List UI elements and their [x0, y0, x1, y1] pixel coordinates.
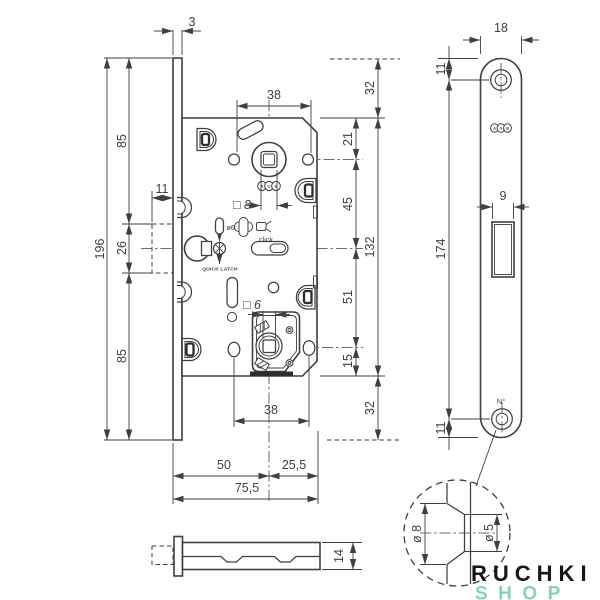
faceplate-view: A G B N° 18	[434, 21, 539, 486]
wc-fixing-hole-left	[228, 342, 240, 356]
watermark-line2: SHOP	[475, 584, 571, 600]
drawing-canvas: A G B QUICK LATCH	[0, 0, 600, 600]
dim-right-chains: 32 132 32 21 45 51 15	[320, 59, 400, 440]
wc-square-hole	[263, 340, 276, 353]
dim-latch-throw: 11	[152, 182, 173, 222]
watermark-line1: RUCHKI	[471, 561, 593, 586]
svg-text:11: 11	[156, 182, 169, 196]
svg-text:32: 32	[363, 401, 377, 415]
faceplate-edge	[173, 58, 182, 440]
small-hole-left	[227, 312, 236, 321]
front-view: A G B QUICK LATCH	[93, 15, 400, 504]
svg-text:B: B	[506, 126, 509, 131]
wc-fixing-hole-right	[303, 341, 315, 355]
svg-text:132: 132	[363, 237, 377, 258]
svg-text:85: 85	[115, 134, 129, 148]
svg-text:11: 11	[434, 62, 448, 75]
svg-text:38: 38	[264, 403, 278, 417]
deadbolt-slot	[252, 242, 289, 256]
quick-latch-screw	[214, 243, 226, 255]
latch-pin	[216, 218, 224, 234]
small-hole-center	[268, 282, 278, 292]
svg-text:45: 45	[341, 197, 355, 211]
logo-letter-g: G	[267, 184, 270, 189]
svg-text:15: 15	[341, 354, 355, 368]
watermark: RUCHKI SHOP	[471, 561, 593, 600]
svg-text:25,5: 25,5	[282, 458, 306, 472]
lock-technical-drawing: A G B QUICK LATCH	[0, 0, 600, 600]
svg-text:G: G	[499, 126, 502, 131]
svg-text:14: 14	[332, 549, 346, 563]
faceplate-side	[174, 537, 183, 577]
quick-latch-label: QUICK LATCH	[202, 267, 238, 273]
svg-text:18: 18	[494, 21, 508, 35]
handle-fixing-hole-left	[229, 154, 240, 165]
pin-dia-label: ø6	[227, 223, 235, 232]
detail-leader-line	[476, 430, 496, 486]
handle-hub	[252, 143, 286, 177]
serial-label: N°	[497, 397, 505, 406]
latch-side-dashed	[152, 546, 173, 565]
svg-text:26: 26	[115, 241, 129, 255]
svg-text:174: 174	[434, 239, 448, 260]
dim-faceplate-width: 18	[463, 21, 539, 54]
vertical-slot	[227, 278, 238, 308]
svg-text:50: 50	[217, 458, 231, 472]
svg-text:□ 6: □ 6	[243, 298, 261, 312]
svg-text:9: 9	[500, 189, 507, 203]
case-bottom-opening	[250, 372, 293, 377]
stamp-right-upper	[295, 179, 316, 203]
svg-text:ø 5: ø 5	[482, 524, 496, 542]
dim-plate-thickness: 3	[154, 15, 201, 55]
svg-text:38: 38	[267, 88, 281, 102]
dim-left-chain: 85 26 85	[115, 58, 152, 440]
svg-text:75,5: 75,5	[235, 481, 259, 495]
svg-text:11: 11	[434, 421, 448, 434]
svg-text:21: 21	[341, 132, 355, 146]
svg-text:85: 85	[115, 349, 129, 363]
dim-countersink-dia: ø 8	[410, 504, 446, 565]
stamp-bottom-left	[182, 339, 201, 361]
svg-text:32: 32	[363, 81, 377, 95]
agb-logo-faceplate: A G B	[491, 124, 512, 133]
stamp-top-left	[197, 129, 216, 151]
svg-text:□ 8: □ 8	[233, 198, 251, 212]
dim-plate-height: 196	[93, 58, 172, 440]
side-view: 14	[152, 537, 362, 577]
faceplate-outline	[481, 59, 522, 438]
svg-text:3: 3	[189, 15, 196, 29]
svg-text:196: 196	[93, 239, 107, 260]
handle-fixing-hole-right	[303, 154, 314, 165]
dim-case-thickness: 14	[322, 543, 362, 570]
stamp-right-middle	[296, 286, 315, 310]
svg-text:51: 51	[341, 290, 355, 304]
dim-backset-group: 50 25,5 75,5	[173, 431, 318, 504]
svg-text:A: A	[493, 126, 496, 131]
svg-text:ø 8: ø 8	[410, 525, 424, 543]
